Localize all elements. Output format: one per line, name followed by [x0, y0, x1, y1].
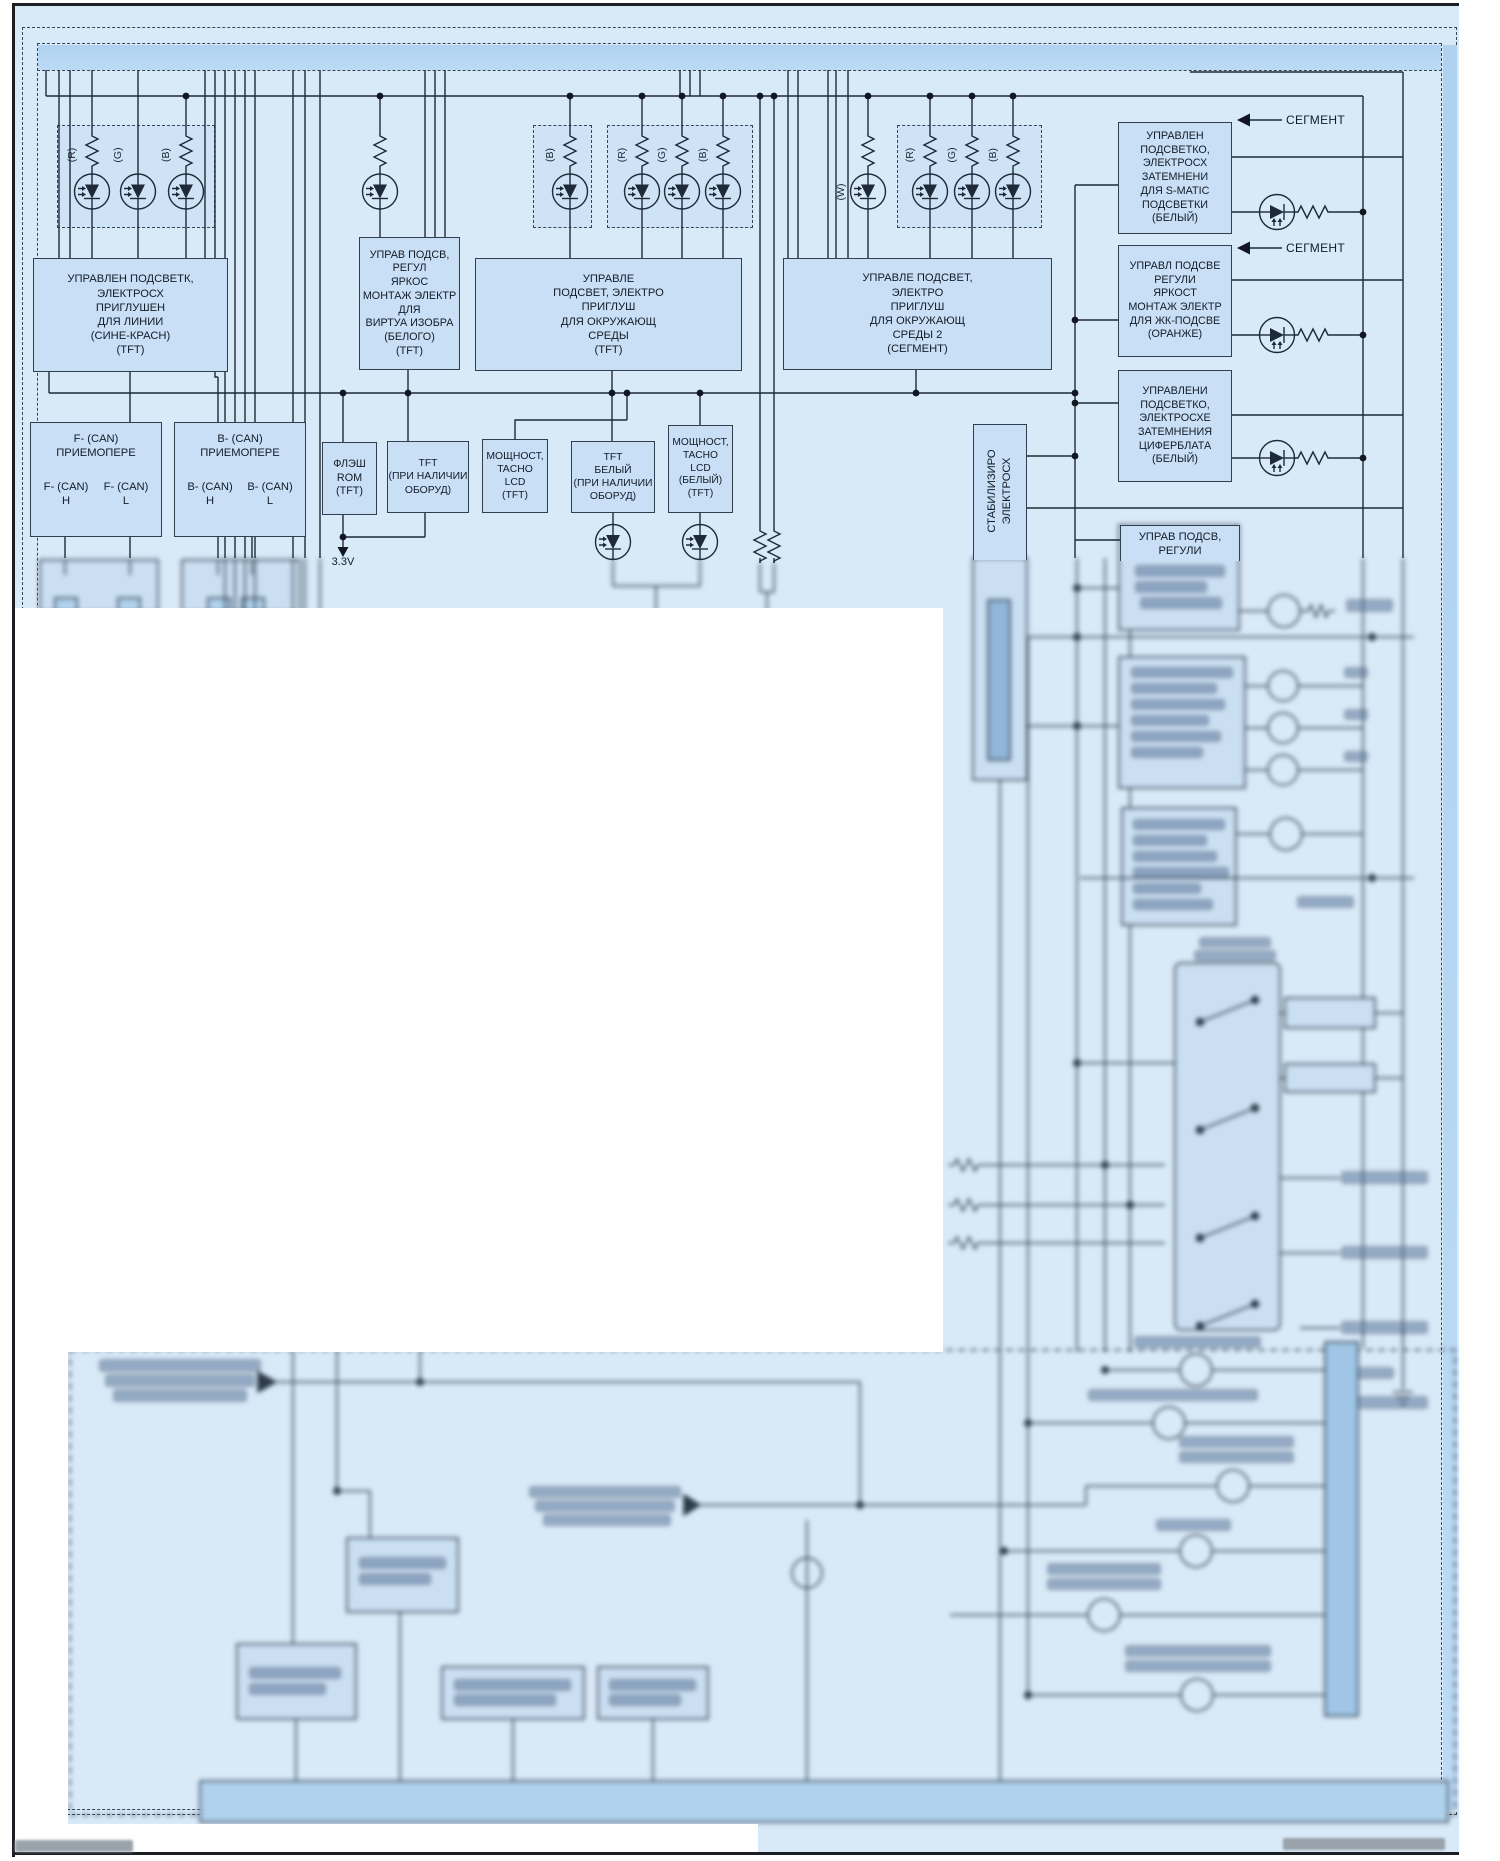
box-b-can-transceiver: B- (CAN) ПРИЕМОПЕРЕ B- (CAN) H B- (CAN) …	[174, 422, 306, 537]
b-can-pin-l: B- (CAN) L	[239, 480, 301, 508]
led-color-label: (B)	[543, 133, 557, 177]
box-backlight-regulator-partial: УПРАВ ПОДСВ, РЕГУЛИ	[1120, 525, 1240, 561]
led-icon	[706, 174, 741, 209]
box-tft-if-equipped: TFT (ПРИ НАЛИЧИИ ОБОРУД)	[387, 441, 469, 513]
led-icon	[996, 174, 1031, 209]
wiring-diagram-page: УПРАВЛЕН ПОДСВЕТК, ЭЛЕКТРОСХ ПРИГЛУШЕН Д…	[0, 0, 1500, 1861]
led-icon	[665, 174, 700, 209]
led-color-label: (W)	[834, 170, 848, 214]
segment-arrow-icon	[1237, 242, 1250, 255]
b-can-pin-h: B- (CAN) H	[179, 480, 241, 508]
led-icon	[169, 174, 204, 209]
segment-arrow-icon	[1237, 114, 1250, 127]
box-tft-line-dimmer: УПРАВЛЕН ПОДСВЕТК, ЭЛЕКТРОСХ ПРИГЛУШЕН Д…	[33, 258, 228, 372]
led-icon	[683, 525, 718, 560]
f-can-pin-l: F- (CAN) L	[95, 480, 157, 508]
led-icon	[596, 525, 631, 560]
led-icon	[75, 174, 110, 209]
led-icon	[955, 174, 990, 209]
f-can-pin-h: F- (CAN) H	[35, 480, 97, 508]
box-dial-dimming: УПРАВЛЕНИ ПОДСВЕТКО, ЭЛЕКТРОСХЕ ЗАТЕМНЕН…	[1118, 370, 1232, 482]
segment-source-label: СЕГМЕНТ	[1286, 113, 1345, 127]
led-color-label: (R)	[903, 133, 917, 177]
led-icon	[625, 174, 660, 209]
box-power-tacho-lcd-white: МОЩНОСТ, TACHO LCD (БЕЛЫЙ) (TFT)	[668, 425, 733, 513]
led-icon	[553, 174, 588, 209]
box-power-tacho-lcd-tft: МОЩНОСТ, TACHO LCD (TFT)	[482, 439, 548, 513]
box-smatic-backlight: УПРАВЛЕН ПОДСВЕТКО, ЭЛЕКТРОСХ ЗАТЕМНЕНИ …	[1118, 122, 1232, 234]
led-icon	[121, 174, 156, 209]
led-icon	[913, 174, 948, 209]
led-color-label: (G)	[945, 133, 959, 177]
led-color-label: (R)	[615, 133, 629, 177]
led-color-label: (R)	[65, 133, 79, 177]
led-icon	[363, 174, 398, 209]
led-icon	[851, 174, 886, 209]
box-f-can-transceiver: F- (CAN) ПРИЕМОПЕРЕ F- (CAN) H F- (CAN) …	[30, 422, 162, 537]
box-ambient-dimmer-segment: УПРАВЛЕ ПОДСВЕТ, ЭЛЕКТРО ПРИГЛУШ ДЛЯ ОКР…	[783, 258, 1052, 370]
stabilizer-label: СТАБИЛИЗИРО ЭЛЕКТРОСХ	[973, 426, 1027, 556]
led-icon	[1260, 318, 1295, 353]
b-can-title: B- (CAN) ПРИЕМОПЕРЕ	[175, 432, 305, 460]
led-color-label: (G)	[655, 133, 669, 177]
box-virtual-image-brightness: УПРАВ ПОДСВ, РЕГУЛ ЯРКОС МОНТАЖ ЭЛЕКТР Д…	[359, 237, 460, 370]
box-tft-white-if-equipped: TFT БЕЛЫЙ (ПРИ НАЛИЧИИ ОБОРУД)	[571, 441, 655, 513]
led-icon	[1260, 195, 1295, 230]
led-color-label: (B)	[986, 133, 1000, 177]
led-color-label: (B)	[696, 133, 710, 177]
led-color-label: (B)	[159, 133, 173, 177]
f-can-title: F- (CAN) ПРИЕМОПЕРЕ	[31, 432, 161, 460]
voltage-3v3-label: 3.3V	[321, 556, 365, 568]
box-ambient-dimmer-tft: УПРАВЛЕ ПОДСВЕТ, ЭЛЕКТРО ПРИГЛУШ ДЛЯ ОКР…	[475, 258, 742, 371]
box-flash-rom: ФЛЭШ ROM (TFT)	[322, 442, 377, 515]
box-lcd-backlight-orange: УПРАВЛ ПОДСВЕ РЕГУЛИ ЯРКОСТ МОНТАЖ ЭЛЕКТ…	[1118, 245, 1232, 357]
led-icon	[1260, 441, 1295, 476]
led-color-label: (G)	[111, 133, 125, 177]
segment-source-label: СЕГМЕНТ	[1286, 241, 1345, 255]
